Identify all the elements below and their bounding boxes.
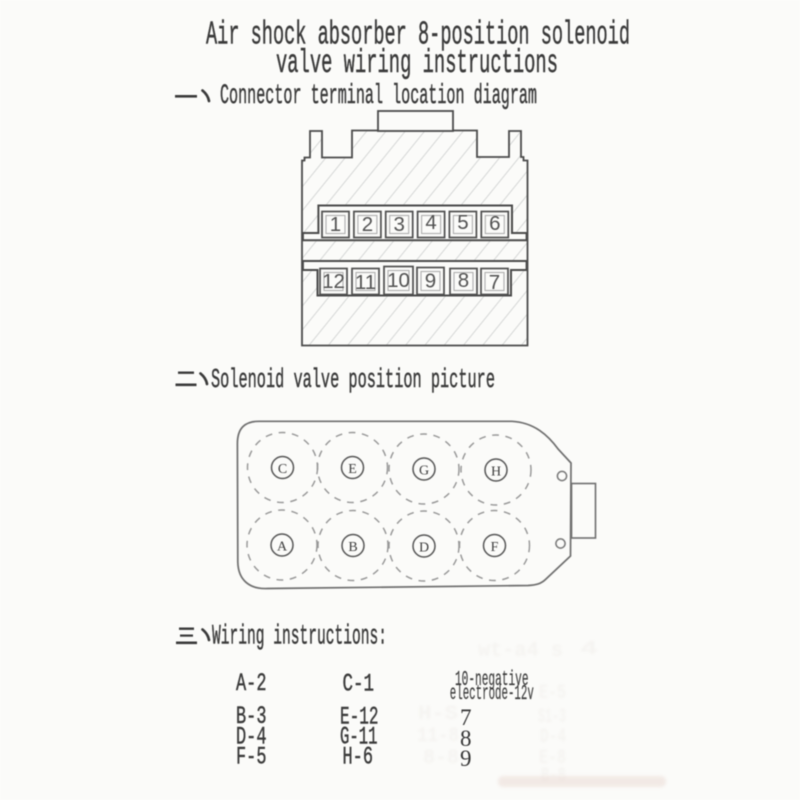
svg-text:4: 4 <box>425 211 436 234</box>
svg-text:Solenoid valve position pictur: Solenoid valve position picture <box>211 366 495 396</box>
svg-text:4: 4 <box>580 638 598 660</box>
svg-text:6: 6 <box>489 212 500 235</box>
svg-text:G: G <box>419 464 429 479</box>
svg-text:A: A <box>277 540 288 555</box>
svg-text:8: 8 <box>458 269 469 292</box>
svg-text:wt-a4 s: wt-a4 s <box>478 640 563 663</box>
svg-text:D: D <box>419 541 429 556</box>
svg-text:H: H <box>491 465 501 480</box>
svg-text:H-S: H-S <box>418 703 458 726</box>
svg-text:B: B <box>348 540 357 555</box>
svg-text:valve wiring instructions: valve wiring instructions <box>276 45 558 82</box>
svg-text:3: 3 <box>393 213 404 236</box>
svg-text:9: 9 <box>425 270 436 293</box>
svg-text:11-8: 11-8 <box>417 725 459 748</box>
svg-text:F: F <box>491 540 499 555</box>
svg-text:Wiring instructions:: Wiring instructions: <box>212 621 387 652</box>
svg-text:D-4: D-4 <box>540 726 566 749</box>
svg-text:H-6: H-6 <box>343 743 374 772</box>
svg-text:E-5: E-5 <box>539 682 566 705</box>
svg-text:Connector terminal location di: Connector terminal location diagram <box>220 81 537 112</box>
svg-text:7: 7 <box>489 271 500 294</box>
svg-text:11: 11 <box>355 271 376 294</box>
svg-text:5: 5 <box>457 211 468 234</box>
svg-text:12: 12 <box>322 270 345 293</box>
svg-text:C-1: C-1 <box>343 670 375 699</box>
svg-text:9: 9 <box>460 746 472 771</box>
svg-text:10: 10 <box>387 269 410 292</box>
svg-text:E: E <box>348 462 357 477</box>
svg-text:1: 1 <box>330 213 341 236</box>
svg-text:A-2: A-2 <box>236 669 267 698</box>
svg-text:F-5: F-5 <box>236 743 267 772</box>
svg-text:2: 2 <box>362 213 373 236</box>
svg-text:8-8: 8-8 <box>423 747 459 770</box>
svg-text:C: C <box>278 462 287 477</box>
svg-text:electrode-12v: electrode-12v <box>450 683 534 706</box>
